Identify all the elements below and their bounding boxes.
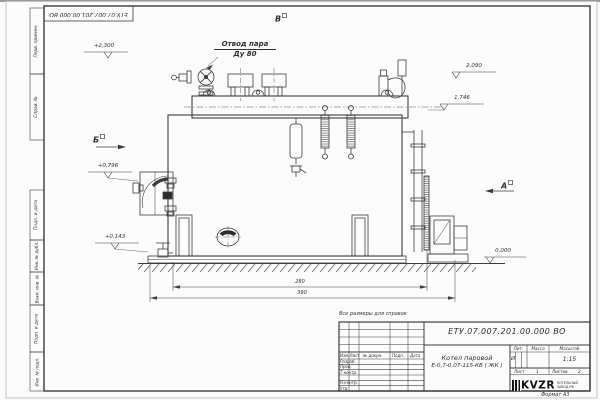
col-list: Лист	[350, 354, 360, 358]
drawing-sheet: ЕТУ.07.007.201.00.000 ВО Перв. примен. С…	[0, 0, 600, 400]
lit-label: Лит.	[510, 347, 527, 351]
logo-subtext: КОТЕЛЬНЫЙЗАВОД РФ	[557, 382, 578, 389]
lifting-lugs	[203, 90, 393, 96]
elevation-0000: 0,000	[482, 249, 524, 255]
col-izm: Изм.	[340, 354, 349, 358]
callout-leader	[206, 57, 218, 70]
view-index-mark	[100, 134, 105, 139]
blowdown-valve	[156, 243, 173, 257]
row-nkontr: Н.контр.	[340, 381, 358, 385]
margin-field-podp-data-1: Подп. и дата	[30, 190, 44, 240]
elevation-0143: +0,143	[93, 235, 137, 241]
col-data: Дата	[410, 354, 420, 358]
sheet-value: 1	[536, 370, 539, 374]
col-podp: Подп.	[392, 354, 404, 358]
format-label: Формат А3	[541, 393, 569, 398]
elevation-2300: +2,300	[82, 44, 126, 50]
scale-value: 1:15	[549, 357, 590, 363]
margin-field-sprav-no: Справ. №	[30, 74, 44, 140]
drawing-canvas	[0, 0, 600, 400]
lit-value: И	[510, 357, 516, 363]
draft-fan	[428, 216, 468, 262]
safety-valve	[379, 70, 405, 98]
elevation-0796: +0,796	[86, 164, 130, 170]
margin-field-inv-dubl: Инв. № дубл.	[30, 240, 44, 272]
view-arrows	[96, 145, 514, 193]
water-level-column	[290, 118, 306, 177]
row-razrab: Разраб.	[340, 360, 356, 364]
dimension-390: 390	[284, 291, 320, 296]
view-label-b: Б	[93, 134, 105, 145]
reference-note: Все размеры для справок	[339, 312, 407, 317]
row-prov: Пров.	[340, 365, 352, 369]
logo-text: KVZR	[521, 379, 555, 391]
gauge-glass-1	[321, 106, 329, 160]
doc-code: ЕТУ.07.007.201.00.000 ВО	[424, 328, 590, 336]
sheets-value: 2	[578, 370, 581, 374]
elevation-2090: 2,090	[452, 64, 496, 70]
view-label-v: В	[275, 13, 287, 24]
view-label-a: А	[501, 180, 513, 191]
view-index-mark	[508, 180, 513, 185]
ground-line	[138, 264, 505, 273]
rear-flue-duct	[402, 130, 429, 252]
top-stamp-code: ЕТУ.07.007.201.00.000 ВО	[44, 6, 133, 21]
logo-bars-icon	[512, 380, 521, 391]
product-name-line1: Котел паровой	[424, 355, 510, 362]
scale-label: Масштаб	[549, 347, 590, 351]
mass-label: Масса	[527, 347, 549, 351]
steam-outlet-callout: Отвод пара Ду 80	[214, 41, 276, 58]
product-name-line2: Е-0,7-0,07-115-КБ ( ЖК )	[424, 364, 510, 370]
margin-field-inv-podl: Инв. № подл.	[30, 352, 44, 391]
view-index-mark	[282, 13, 287, 18]
supports	[176, 215, 368, 256]
boiler-shell	[168, 115, 402, 256]
margin-field-podp-data-2: Подп. и дата	[30, 305, 44, 352]
callout-line1: Отвод пара	[214, 41, 276, 50]
row-tkontr: Т.контр.	[340, 371, 357, 375]
sheet-label: Лист	[514, 370, 525, 374]
sheets-label: Листов	[552, 370, 568, 374]
manhole	[215, 226, 241, 248]
gauge-glass-2	[347, 106, 355, 160]
sheet-border	[6, 2, 597, 399]
row-utv: Утв.	[340, 387, 348, 391]
margin-field-perv-primen: Перв. примен.	[30, 8, 44, 74]
base-frame	[148, 256, 406, 263]
callout-line2: Ду 80	[214, 51, 276, 58]
manufacturer-logo: KVZRКОТЕЛЬНЫЙЗАВОД РФ	[512, 377, 589, 393]
elevation-1746: 1,746	[440, 96, 484, 102]
elevation-marks	[84, 52, 526, 263]
col-ndoc: № докум.	[363, 354, 383, 358]
dimension-280: 280	[282, 280, 318, 285]
margin-field-vzam-inv: Взам. инв. №	[30, 272, 44, 305]
